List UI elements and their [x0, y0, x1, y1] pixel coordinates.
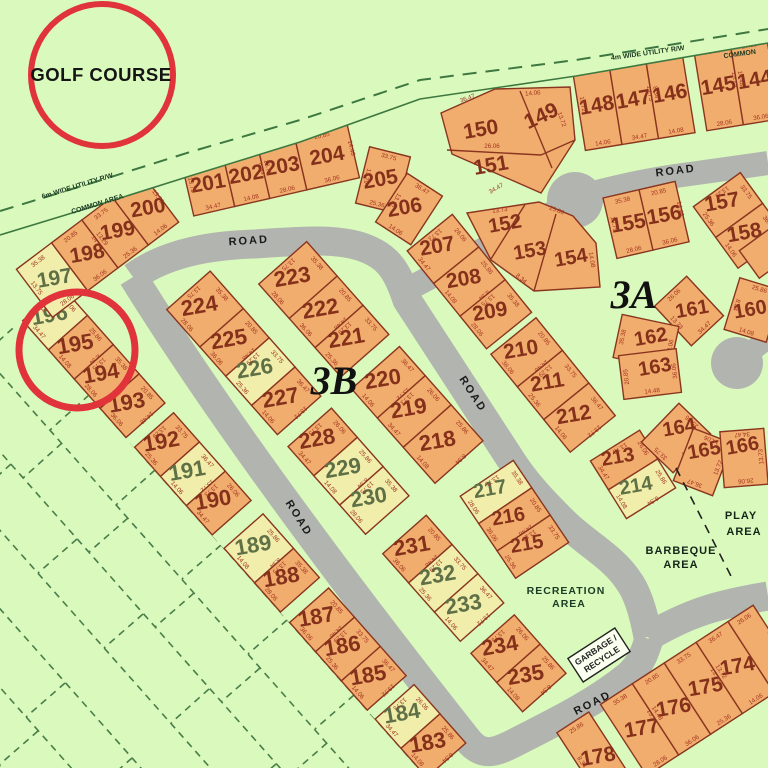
svg-text:34.47: 34.47: [734, 430, 751, 438]
svg-text:RECREATION: RECREATION: [527, 585, 606, 597]
svg-text:BARBEQUE: BARBEQUE: [646, 545, 717, 557]
svg-text:3A: 3A: [610, 272, 658, 317]
svg-text:26.06: 26.06: [484, 143, 500, 150]
svg-text:3B: 3B: [310, 358, 358, 403]
svg-text:14.06: 14.06: [525, 89, 542, 97]
svg-text:26.06: 26.06: [737, 476, 754, 484]
svg-text:AREA: AREA: [663, 559, 698, 571]
svg-text:AREA: AREA: [552, 598, 586, 610]
svg-text:GOLF COURSE: GOLF COURSE: [30, 64, 171, 85]
svg-text:13.73: 13.73: [757, 448, 765, 465]
svg-text:AREA: AREA: [726, 526, 761, 538]
svg-text:PLAY: PLAY: [725, 510, 757, 522]
